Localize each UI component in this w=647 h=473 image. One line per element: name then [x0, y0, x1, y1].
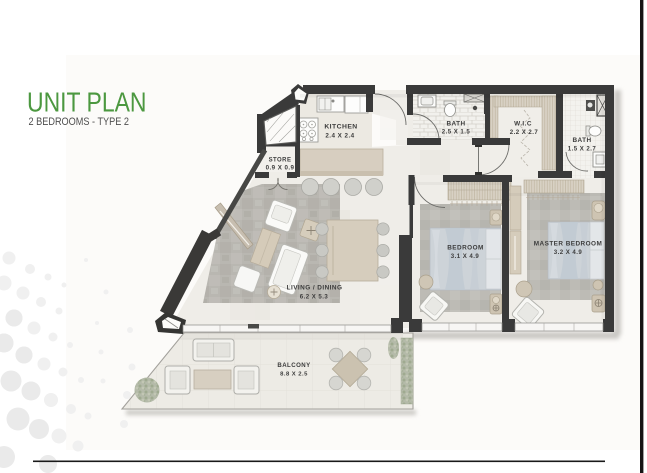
svg-text:1.5 X 2.7: 1.5 X 2.7	[568, 146, 597, 153]
svg-text:W.I.C: W.I.C	[514, 121, 532, 128]
svg-text:8.8 X 2.5: 8.8 X 2.5	[280, 372, 308, 378]
svg-text:STORE: STORE	[269, 158, 292, 164]
svg-text:0.9 X 0.9: 0.9 X 0.9	[266, 165, 295, 172]
svg-text:BEDROOM: BEDROOM	[447, 245, 484, 252]
svg-text:BATH: BATH	[446, 121, 465, 128]
svg-text:MASTER BEDROOM: MASTER BEDROOM	[534, 241, 602, 248]
svg-text:3.1 X 4.9: 3.1 X 4.9	[451, 253, 480, 260]
svg-text:2.4 X 2.4: 2.4 X 2.4	[325, 133, 354, 140]
svg-text:UNIT PLAN: UNIT PLAN	[27, 87, 147, 118]
svg-text:2.5 X 1.5: 2.5 X 1.5	[442, 129, 471, 136]
svg-text:BATH: BATH	[572, 137, 591, 144]
svg-text:3.2 X 4.9: 3.2 X 4.9	[554, 249, 583, 256]
svg-text:2 BEDROOMS - TYPE 2: 2 BEDROOMS - TYPE 2	[29, 116, 130, 128]
svg-text:2.2 X 2.7: 2.2 X 2.7	[510, 129, 539, 136]
svg-text:KITCHEN: KITCHEN	[324, 124, 357, 131]
svg-text:6.2 X 5.3: 6.2 X 5.3	[300, 294, 329, 301]
svg-text:LIVING / DINING: LIVING / DINING	[287, 285, 343, 292]
svg-text:BALCONY: BALCONY	[277, 362, 310, 369]
